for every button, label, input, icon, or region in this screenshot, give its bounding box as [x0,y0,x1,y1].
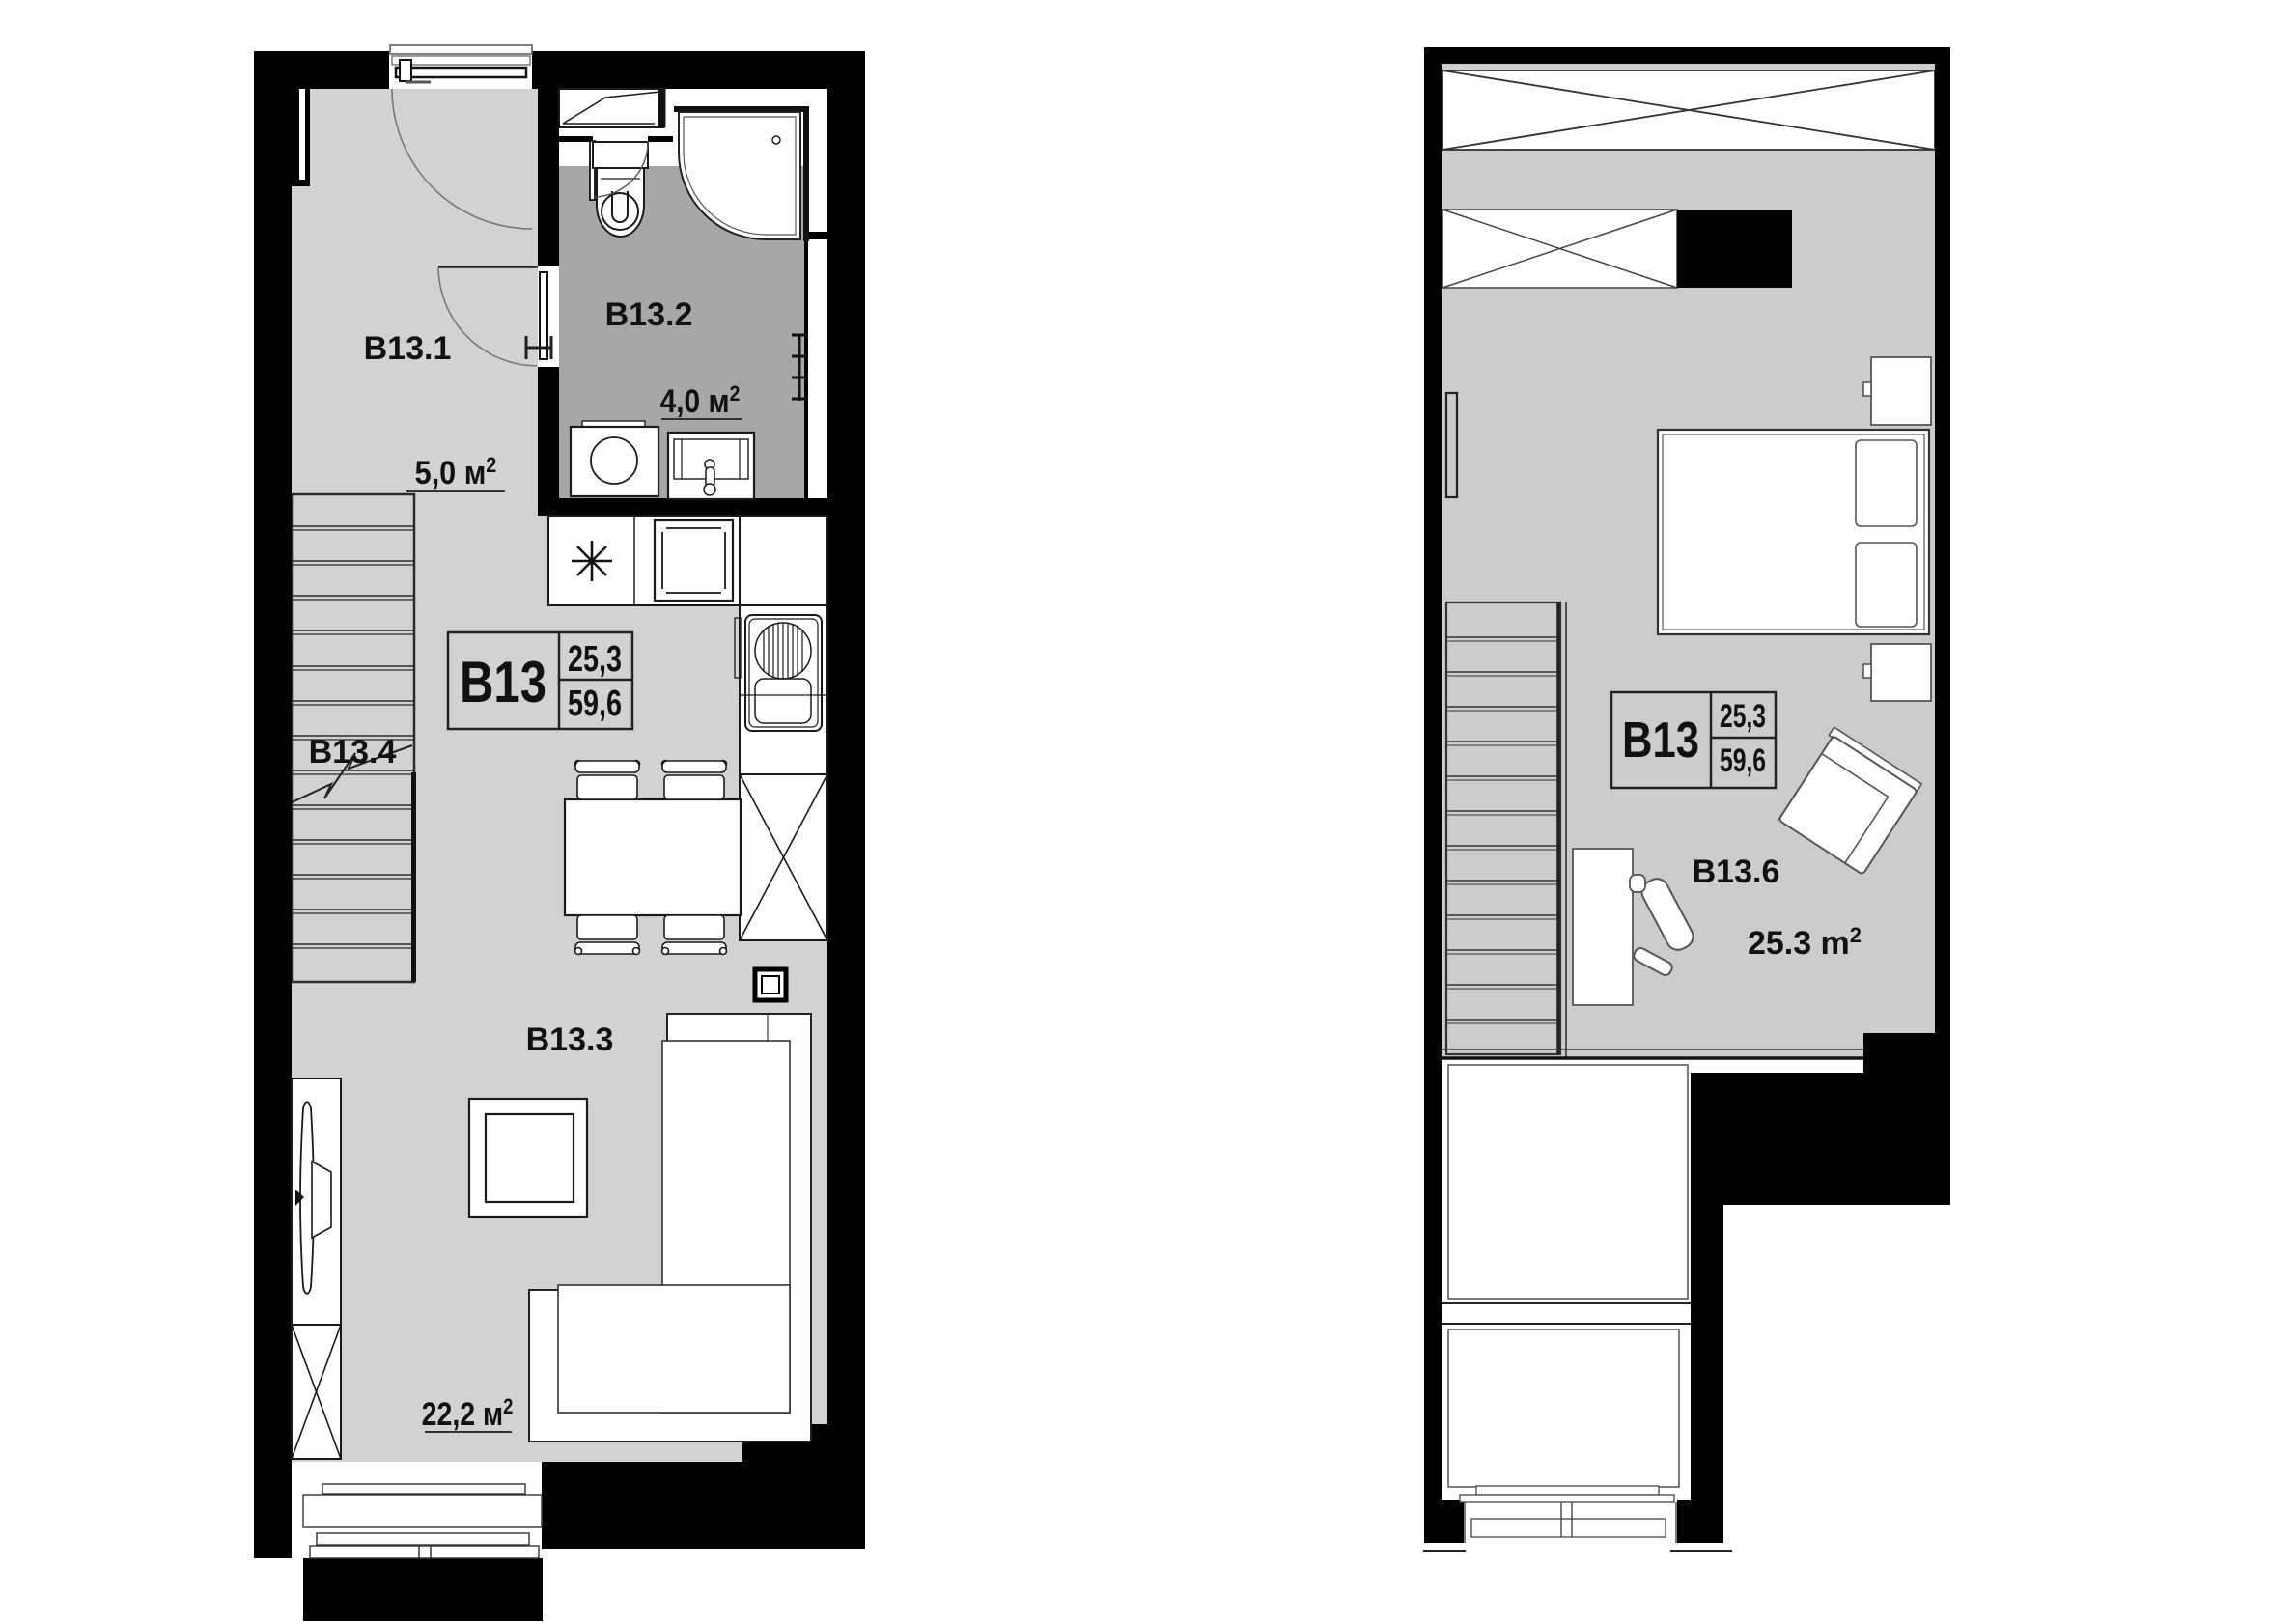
svg-text:B13: B13 [1622,713,1699,769]
svg-text:5,0 м2: 5,0 м2 [415,454,497,490]
svg-text:59,6: 59,6 [1720,742,1766,779]
svg-text:B13.1: B13.1 [364,330,452,367]
svg-text:22,2 м2: 22,2 м2 [422,1396,514,1433]
svg-text:25,3: 25,3 [568,639,622,680]
svg-text:B13.6: B13.6 [1693,854,1780,890]
svg-text:B13.4: B13.4 [309,734,397,770]
svg-text:25.3 m2: 25.3 m2 [1748,923,1862,962]
svg-text:B13: B13 [460,650,546,714]
svg-text:B13.3: B13.3 [526,1022,614,1058]
svg-text:B13.2: B13.2 [605,296,693,333]
svg-text:4,0 м2: 4,0 м2 [660,382,741,420]
svg-text:59,6: 59,6 [568,684,622,724]
svg-text:25,3: 25,3 [1720,698,1766,735]
